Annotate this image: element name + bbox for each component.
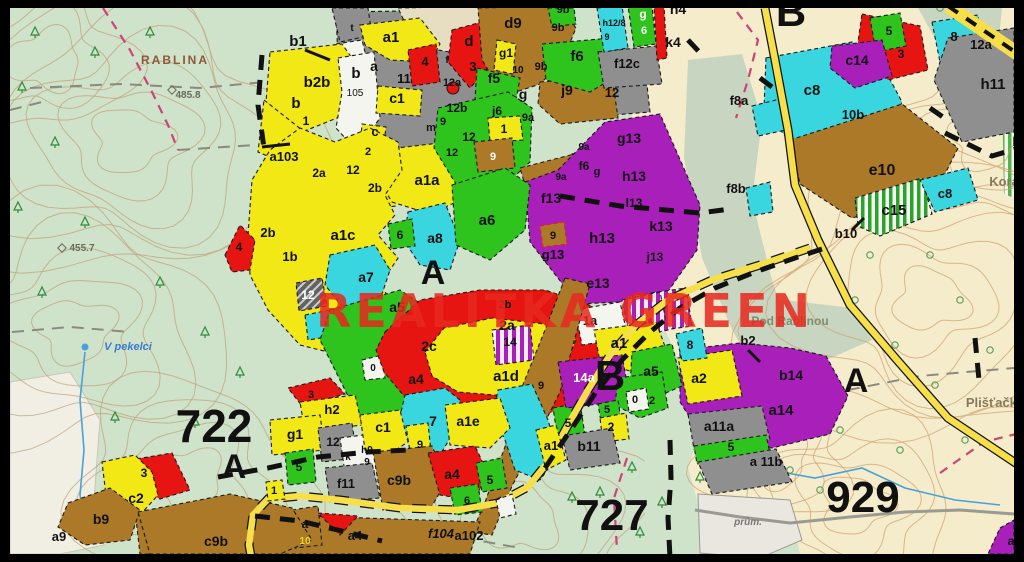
map-label-f6: f6 — [579, 159, 590, 173]
map-label-9: 9 — [364, 457, 370, 468]
map-label-6: 6 — [397, 228, 404, 242]
map-label-d: d — [464, 33, 473, 50]
map-label-3: 3 — [898, 47, 905, 61]
map-label-b: b — [291, 95, 300, 112]
map-label-j13: j13 — [646, 250, 664, 264]
map-label-c1: c1 — [389, 90, 405, 106]
map-label-a: a — [1008, 534, 1015, 548]
map-label-722: 722 — [176, 400, 253, 452]
map-label-12: 12 — [346, 163, 360, 177]
map-label-12a: 12a — [443, 77, 462, 89]
map-label-c9b: c9b — [204, 533, 228, 549]
map-label-12b: 12b — [447, 101, 468, 115]
map-label-9a: 9a — [578, 142, 590, 153]
map-label-14a: 14a — [573, 370, 595, 385]
parcel-f8b-cyan — [746, 182, 773, 216]
map-label-a: A — [222, 448, 247, 486]
letterbox-right — [1014, 0, 1024, 562]
map-label-j9: j9 — [560, 82, 573, 98]
map-label-0: 0 — [370, 363, 376, 374]
map-label-b9: b9 — [93, 511, 110, 527]
map-label-5: 5 — [487, 473, 494, 487]
map-label-a2: a2 — [691, 370, 707, 386]
map-label-a1a: a1a — [414, 172, 440, 189]
map-label-g13: g13 — [617, 130, 641, 146]
map-label-g: g — [519, 86, 528, 102]
map-label-c8: c8 — [804, 82, 821, 99]
map-label-4858: 485.8 — [175, 90, 200, 101]
watermark-text: REALITKA GREEN — [316, 284, 814, 338]
map-label-105: 105 — [347, 88, 364, 99]
map-label-9: 9 — [604, 32, 609, 42]
map-label-5: 5 — [296, 460, 303, 474]
cadastral-map-canvas: b1b2bb105b1a1032a122bc1a14d3a11f12a12bc2… — [0, 0, 1024, 562]
map-label-d9: d9 — [504, 15, 522, 32]
map-label-a8: a8 — [427, 230, 443, 246]
map-label-a4: a4 — [408, 371, 424, 387]
map-label-5: 5 — [728, 440, 735, 454]
map-label-9: 9 — [550, 230, 556, 242]
letterbox-bottom — [0, 554, 1024, 562]
map-label-k4: k4 — [665, 34, 681, 50]
letterbox-top — [0, 0, 1024, 8]
map-label-b1: b1 — [289, 33, 307, 50]
map-label-10: 10 — [512, 65, 524, 76]
map-label-b11: b11 — [577, 438, 601, 454]
map-label-9: 9 — [490, 151, 496, 163]
map-label-h2: h2 — [324, 402, 339, 417]
map-label-9a: 9a — [555, 172, 567, 183]
map-label-8: 8 — [950, 29, 957, 44]
map-label-g1: g1 — [287, 426, 304, 442]
map-label-g13: g13 — [542, 247, 564, 262]
map-label-2b: 2b — [368, 181, 382, 195]
map-label-b14: b14 — [779, 367, 803, 383]
map-label-f12c: f12c — [614, 56, 640, 71]
map-label-4557: 455.7 — [69, 243, 94, 254]
map-label-2a: 2a — [312, 166, 326, 180]
map-label-h11: h11 — [980, 76, 1005, 93]
map-label-c8: c8 — [938, 186, 952, 201]
map-label-f13: f13 — [541, 190, 561, 206]
map-label-c2: c2 — [128, 490, 144, 506]
map-label-a: a — [302, 517, 309, 531]
map-label-f6: f6 — [570, 48, 583, 65]
map-label-3: 3 — [469, 59, 476, 74]
map-label-3: 3 — [308, 389, 314, 401]
map-label-prm: prům. — [733, 516, 762, 528]
map-label-a: a — [370, 58, 378, 74]
map-label-rablina: RABLINA — [141, 53, 209, 67]
map-label-6: 6 — [641, 25, 647, 37]
map-label-a1d: a1d — [493, 368, 519, 385]
map-label-h128: h12/8 — [602, 18, 625, 28]
map-label-4: 4 — [236, 240, 243, 254]
map-label-9: 9 — [417, 439, 423, 451]
map-label-9: 9 — [538, 380, 544, 392]
map-label-j6: j6 — [491, 104, 502, 118]
map-label-12: 12 — [605, 85, 619, 100]
map-label-l13: l13 — [626, 196, 643, 210]
map-label-6: 6 — [464, 495, 470, 507]
map-label-a: A — [844, 362, 869, 400]
map-label-m: m — [426, 122, 436, 134]
map-label-a4: a4 — [444, 466, 460, 482]
map-label-9b: 9b — [535, 61, 548, 73]
map-label-9a: 9a — [522, 112, 535, 124]
map-label-4: 4 — [421, 54, 429, 69]
map-label-f104: f104 — [428, 526, 455, 541]
map-label-929: 929 — [826, 473, 899, 522]
map-label-f8b: f8b — [726, 181, 746, 196]
map-label-1b: 1b — [282, 249, 297, 264]
letterbox-left — [0, 0, 10, 562]
map-label-5: 5 — [565, 416, 572, 430]
map-label-c: c — [371, 124, 378, 139]
map-label-k: k — [345, 452, 351, 463]
map-label-2b: 2b — [260, 225, 275, 240]
map-label-a11b: a 11b — [750, 454, 783, 469]
map-label-12: 12 — [326, 435, 340, 449]
map-label-a9: a9 — [52, 529, 66, 544]
map-label-1: 1 — [303, 114, 310, 128]
map-label-727: 727 — [575, 491, 648, 540]
map-label-h9: h9 — [361, 445, 373, 456]
map-label-b: B — [595, 352, 625, 399]
map-label-b2b: b2b — [304, 74, 331, 91]
map-label-2: 2 — [365, 146, 371, 158]
map-label-c14: c14 — [845, 52, 869, 68]
map-label-11: 11 — [397, 71, 411, 86]
map-label-g: g — [594, 166, 601, 178]
map-label-8: 8 — [687, 338, 694, 352]
map-label-f11: f11 — [337, 476, 355, 491]
map-label-5: 5 — [604, 404, 610, 416]
map-label-a4: a4 — [348, 528, 363, 543]
map-label-12: 12 — [301, 288, 315, 302]
map-label-k13: k13 — [649, 218, 673, 234]
map-label-a6: a6 — [479, 212, 496, 229]
map-label-7: 7 — [429, 413, 437, 429]
map-label-a102: a102 — [455, 528, 484, 543]
map-label-g1: g1 — [499, 46, 513, 60]
map-label-h13: h13 — [622, 168, 646, 184]
map-label-g: g — [639, 7, 646, 21]
map-label-a1e: a1e — [456, 413, 480, 429]
map-label-0: 0 — [632, 394, 638, 406]
map-label-2: 2 — [649, 395, 655, 407]
map-label-b10: b10 — [835, 226, 857, 241]
map-label-e10: e10 — [869, 162, 896, 179]
map-label-12: 12 — [462, 130, 476, 144]
map-label-f5: f5 — [488, 70, 501, 86]
map-label-a5: a5 — [643, 363, 659, 379]
map-label-1: 1 — [501, 122, 508, 136]
map-image: b1b2bb105b1a1032a122bc1a14d3a11f12a12bc2… — [0, 0, 1024, 562]
map-label-5: 5 — [886, 24, 893, 38]
map-label-9b: 9b — [552, 22, 565, 34]
map-label-a1: a1 — [383, 29, 400, 46]
map-label-10: 10 — [299, 536, 311, 547]
map-label-vpekelci: V pekelci — [104, 341, 153, 353]
map-label-9: 9 — [440, 116, 446, 128]
map-label-12a: 12a — [970, 37, 992, 52]
spring-dot — [82, 344, 89, 351]
map-label-a1: a1 — [544, 438, 558, 453]
map-label-3: 3 — [141, 466, 148, 480]
map-label-12: 12 — [446, 147, 458, 159]
map-label-h13: h13 — [589, 230, 615, 247]
map-label-a103: a103 — [270, 149, 299, 164]
map-label-1: 1 — [271, 485, 277, 497]
map-label-2c: 2c — [421, 338, 437, 354]
map-label-10b: 10b — [842, 107, 864, 122]
map-label-a14: a14 — [768, 402, 794, 419]
map-label-a11a: a11a — [704, 418, 735, 434]
map-label-a1c: a1c — [330, 227, 355, 244]
map-label-c9b: c9b — [387, 472, 411, 488]
map-label-f8a: f8a — [730, 93, 750, 108]
map-label-a7: a7 — [358, 269, 374, 285]
map-label-c15: c15 — [881, 202, 906, 219]
map-label-2: 2 — [608, 420, 615, 434]
map-label-c1: c1 — [375, 419, 391, 435]
map-label-b: b — [351, 65, 360, 82]
